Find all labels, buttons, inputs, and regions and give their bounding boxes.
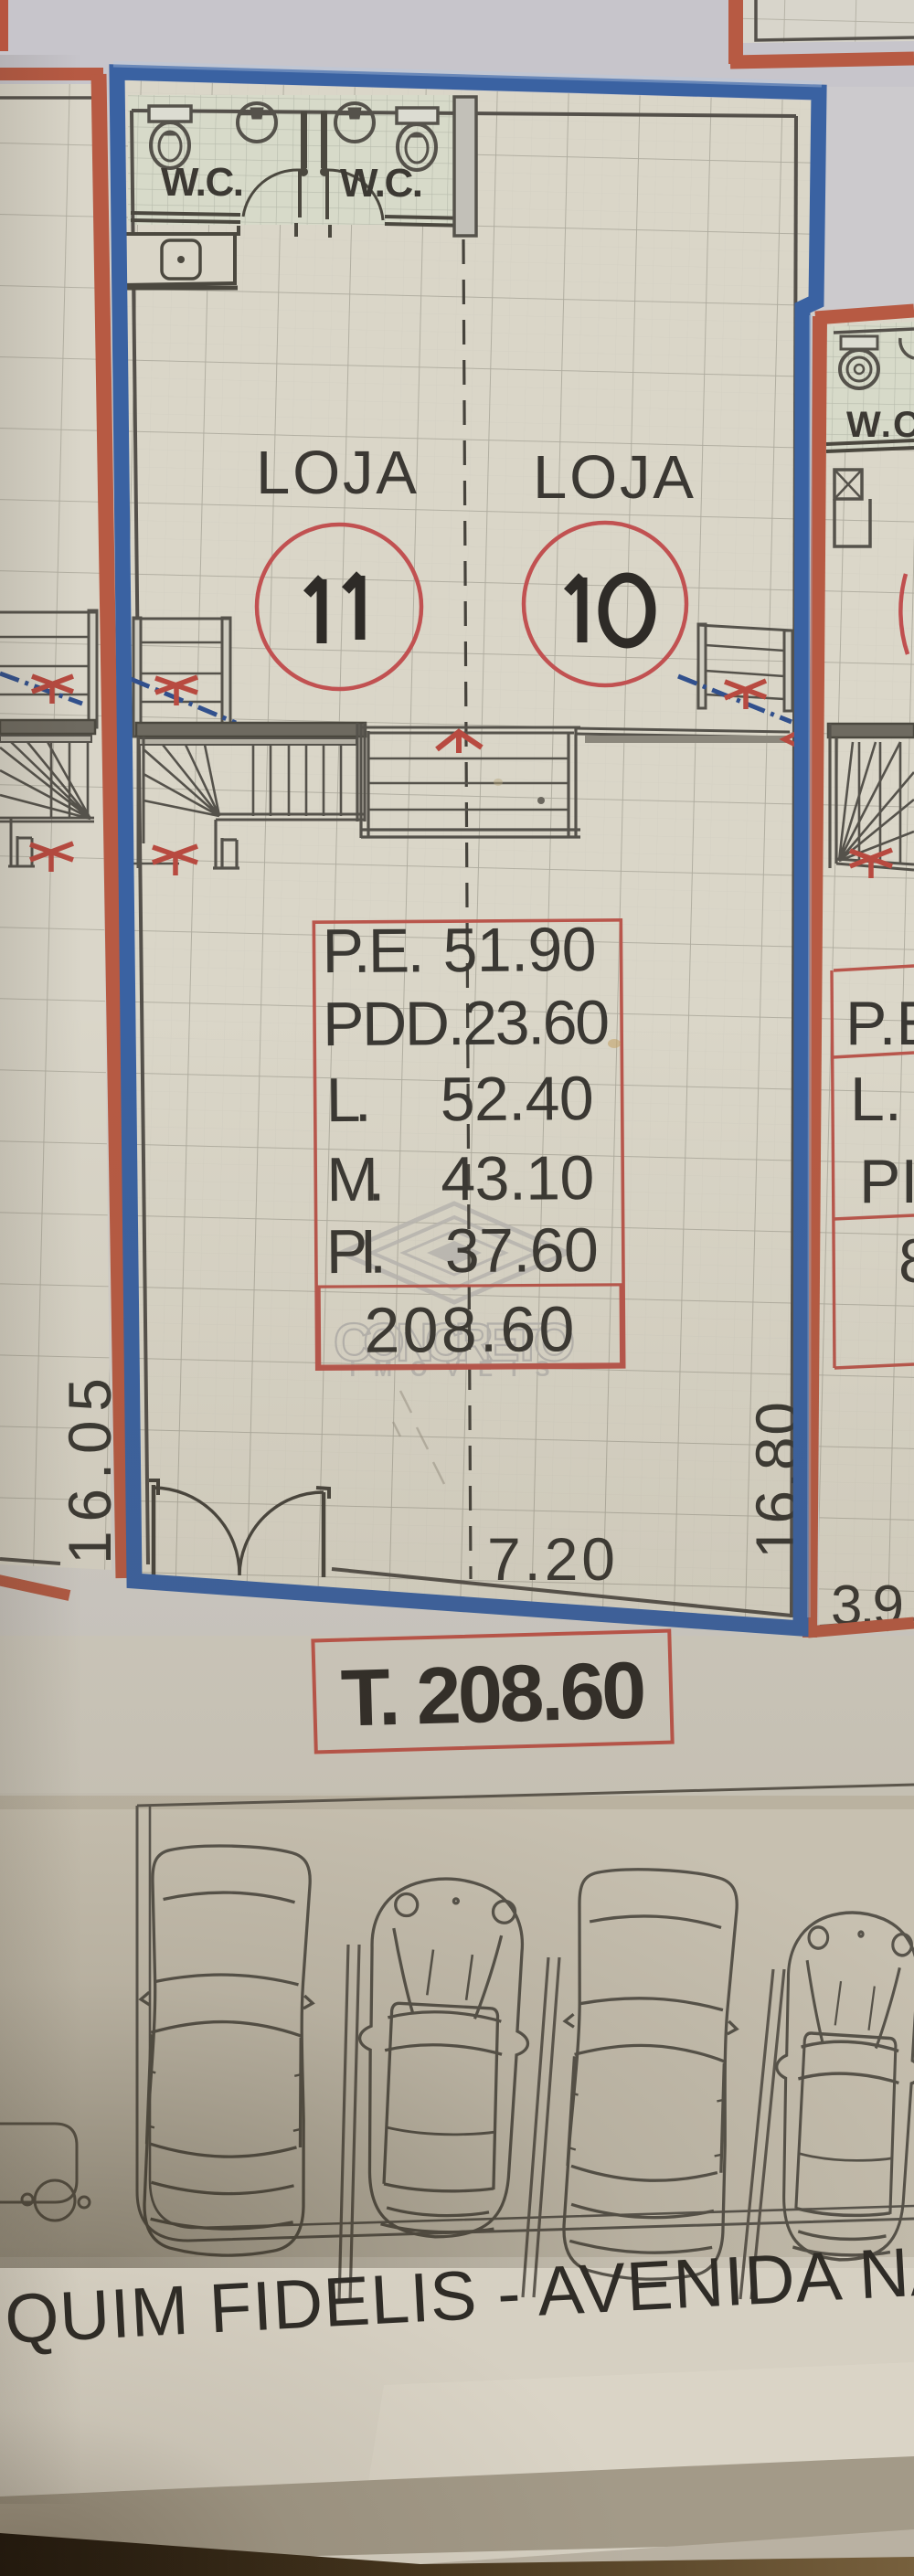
svg-text:P.E.: P.E. bbox=[322, 916, 425, 986]
svg-text:W.C.: W.C. bbox=[161, 160, 245, 205]
svg-text:W.C.: W.C. bbox=[340, 161, 424, 206]
svg-text:LOJA: LOJA bbox=[533, 443, 707, 512]
svg-text:W.C: W.C bbox=[846, 405, 914, 445]
svg-text:LOJA: LOJA bbox=[256, 439, 430, 507]
svg-text:51.90: 51.90 bbox=[442, 915, 597, 985]
